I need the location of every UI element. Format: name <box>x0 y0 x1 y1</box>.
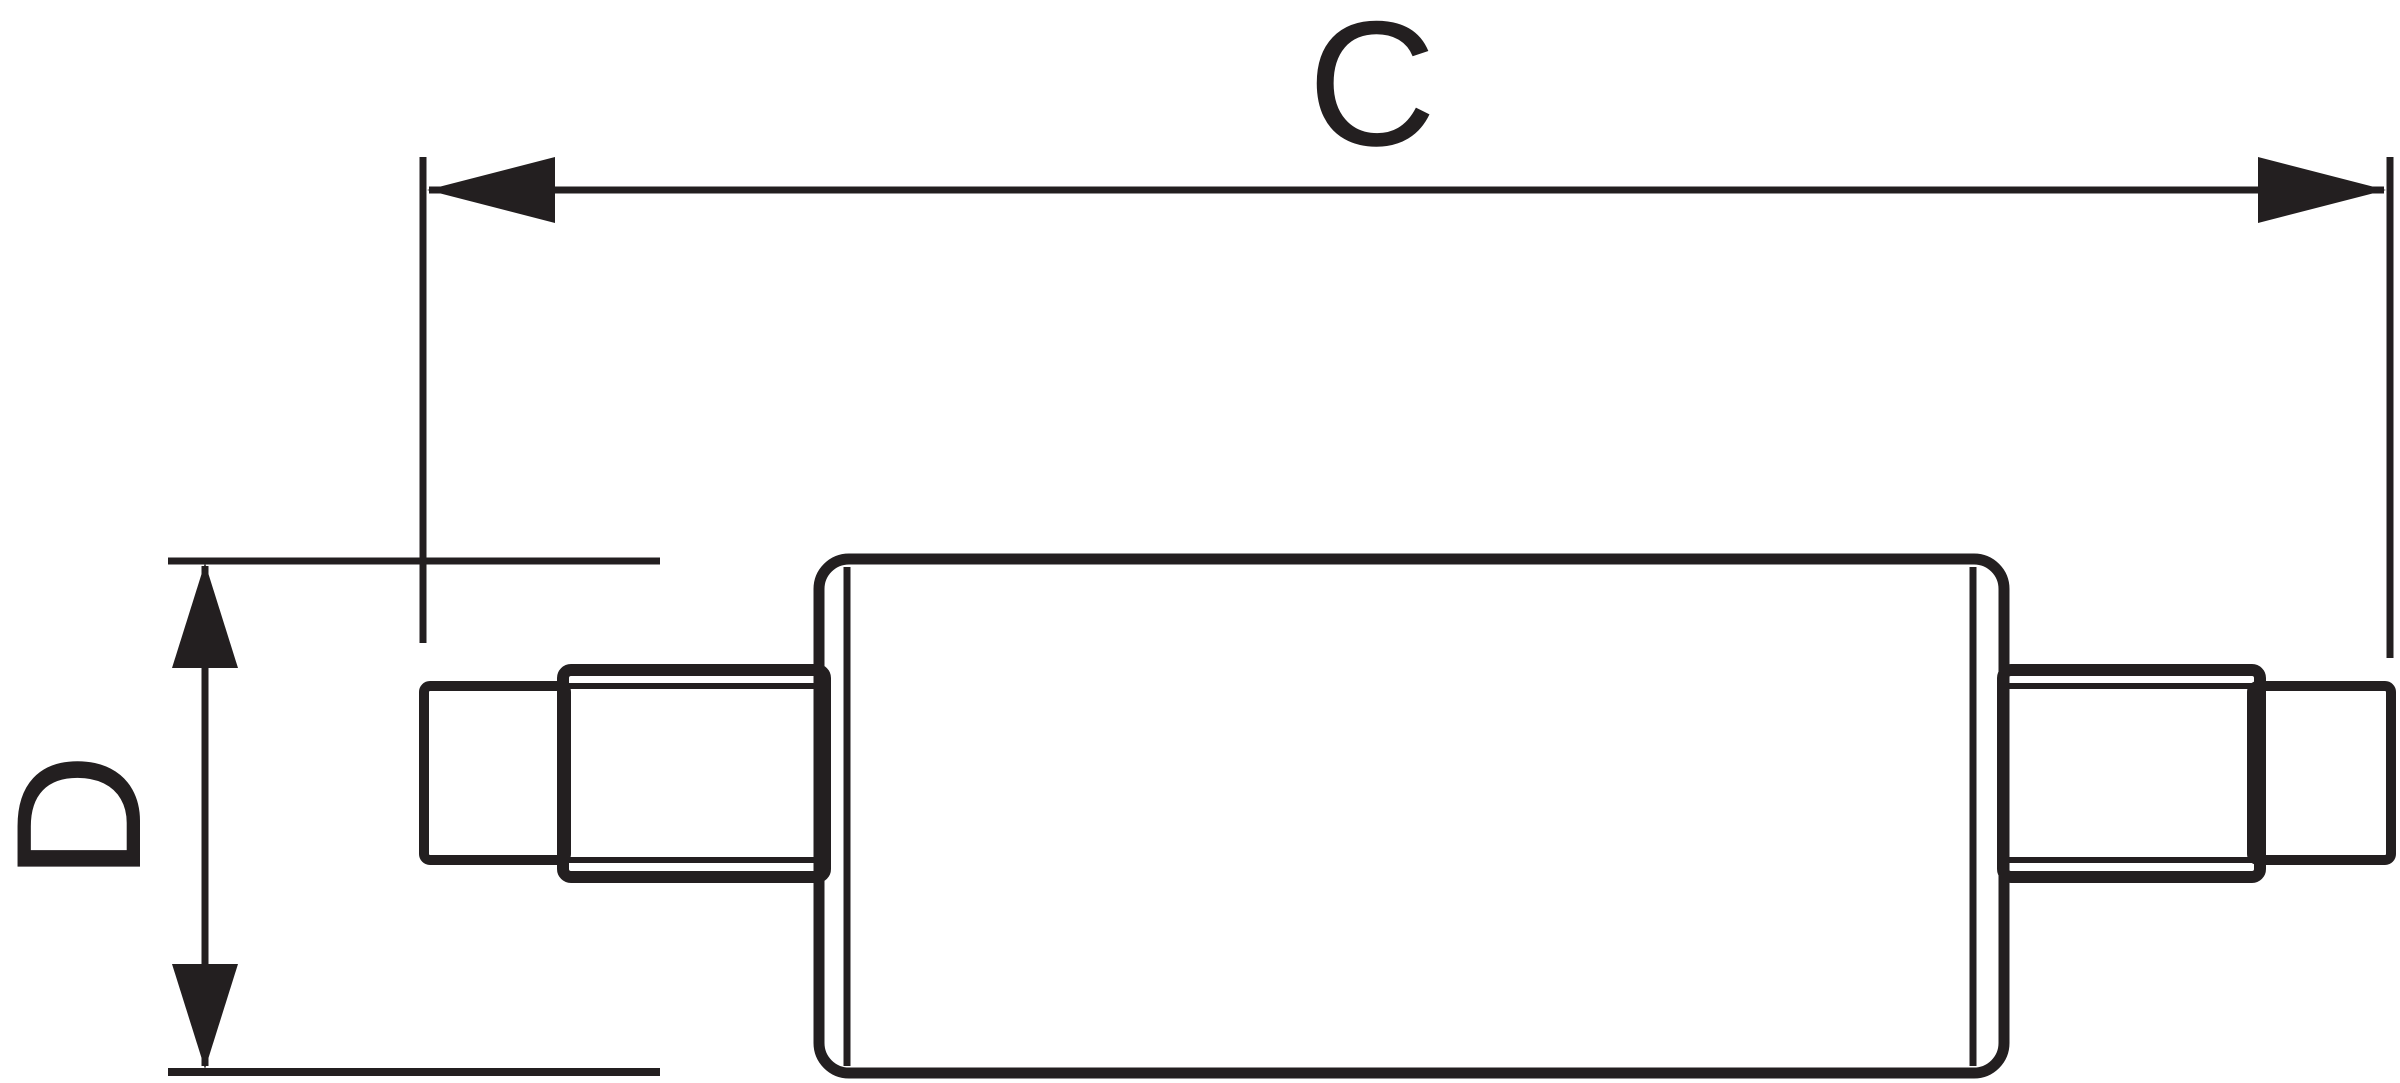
diagram-canvas: C D <box>0 0 2400 1083</box>
dimension-labels: C D <box>0 0 1436 881</box>
dimension-arrowheads <box>172 157 2386 1069</box>
drawing-strokes <box>168 157 2391 1073</box>
c-arrowhead-right-icon <box>2258 157 2386 223</box>
length-dimension-label: C <box>1308 0 1437 183</box>
lamp-dimension-diagram: C D <box>0 0 2400 1083</box>
d-arrowhead-top-icon <box>172 563 238 668</box>
lamp-left-pin <box>424 686 566 860</box>
lamp-body <box>819 559 2004 1073</box>
lamp-outline <box>424 559 2391 1073</box>
c-dimension <box>423 157 2390 658</box>
d-arrowhead-bottom-icon <box>172 964 238 1069</box>
diameter-dimension-label: D <box>0 753 178 882</box>
lamp-right-end-block <box>2003 670 2260 877</box>
d-dimension <box>168 561 660 1072</box>
c-arrowhead-left-icon <box>427 157 555 223</box>
lamp-right-pin <box>2252 686 2391 860</box>
lamp-left-end-block <box>563 670 825 877</box>
